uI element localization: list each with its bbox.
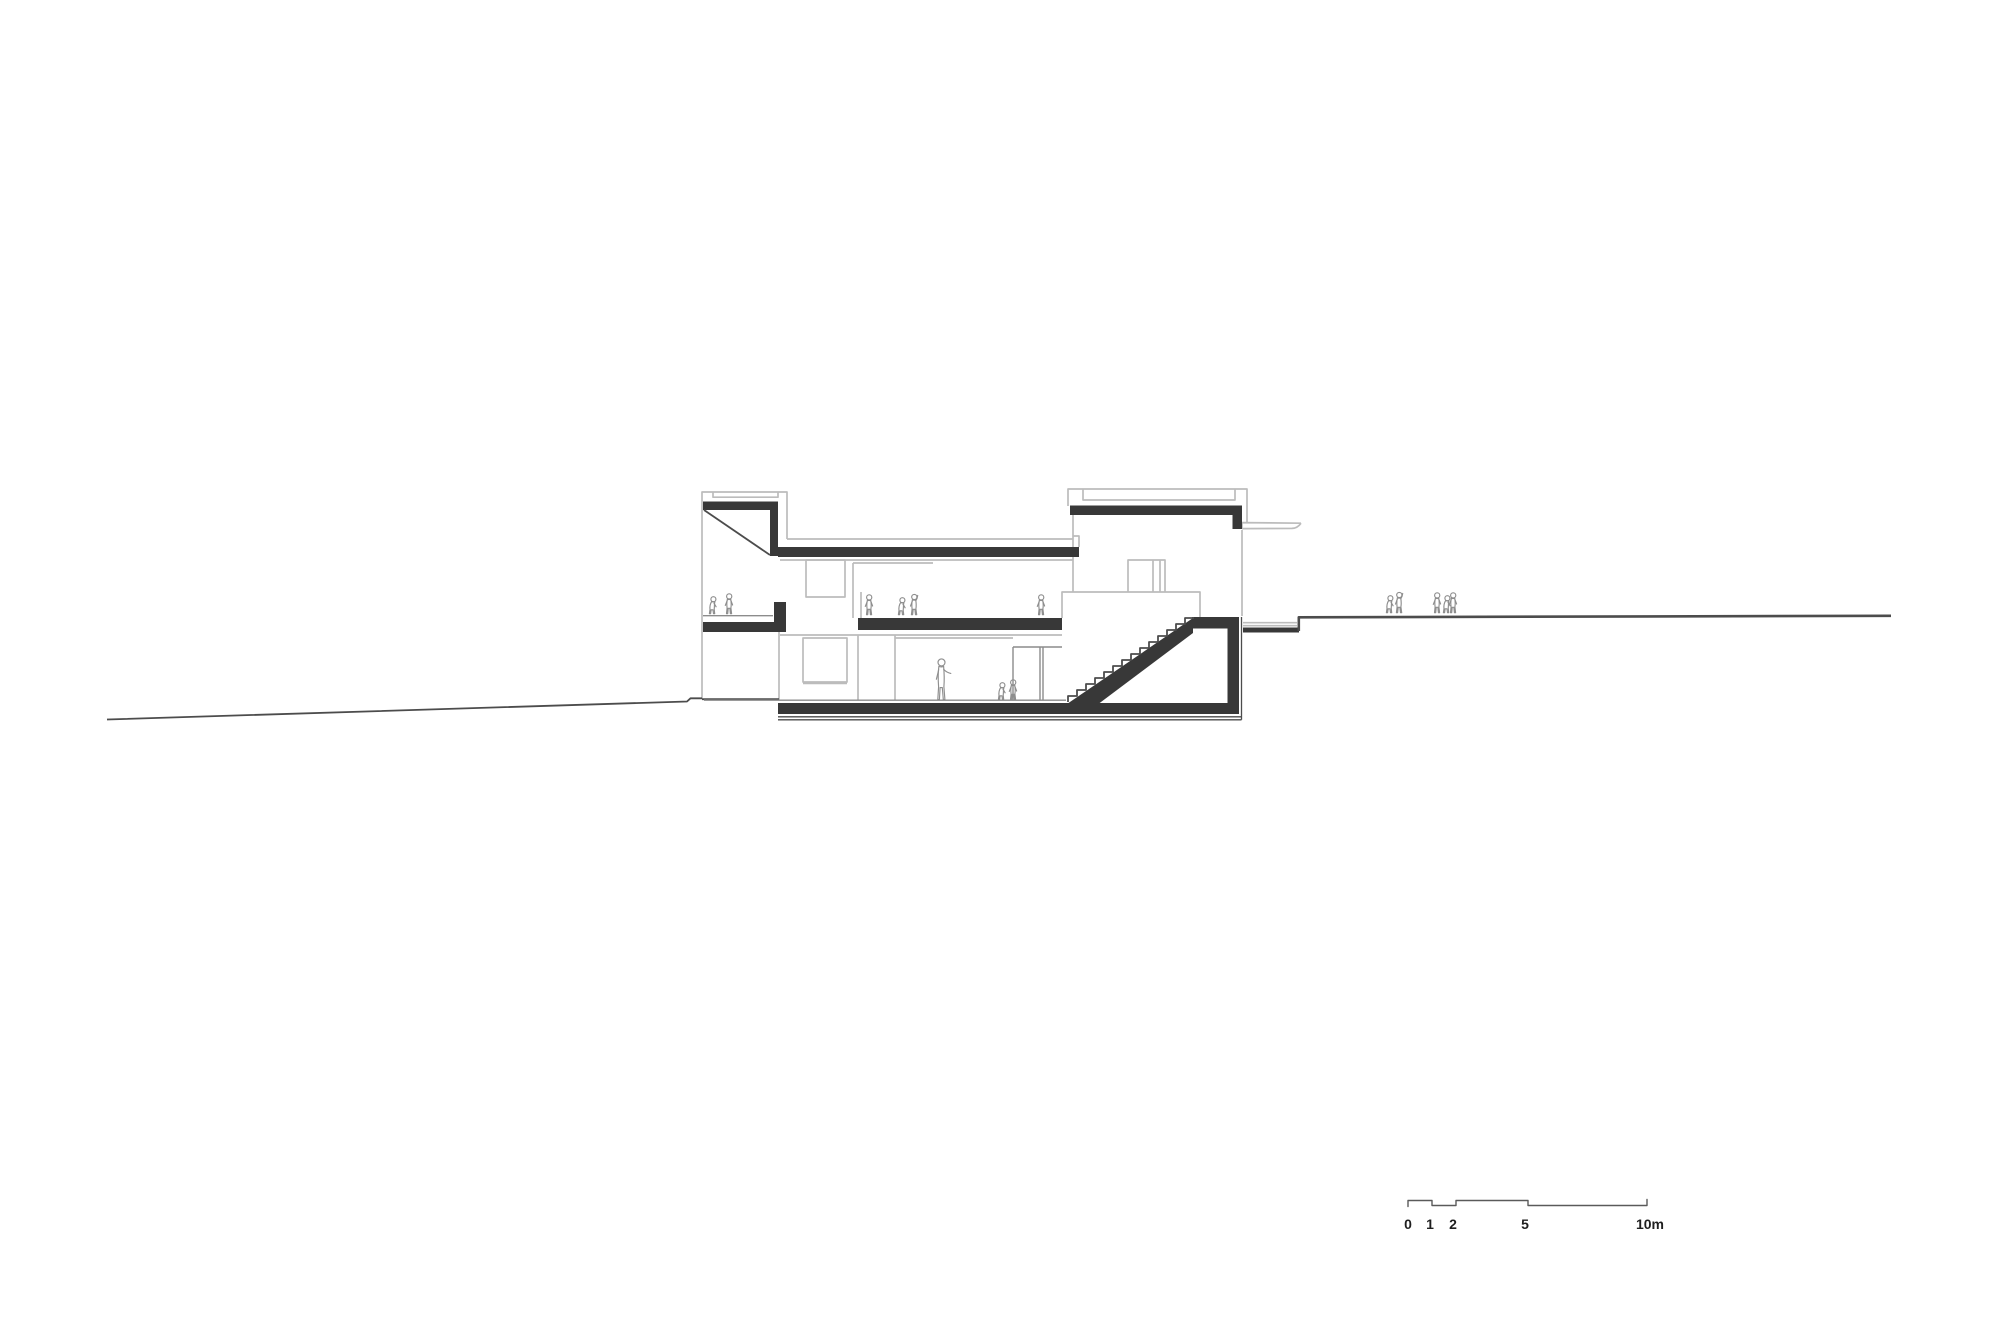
scale-label-0: 0: [1404, 1216, 1412, 1232]
scale-label-1: 1: [1426, 1216, 1434, 1232]
scale-label-5: 5: [1521, 1216, 1529, 1232]
section-drawing: 0 1 2 5 10m: [0, 0, 2000, 1333]
paper-background: [0, 0, 2000, 1333]
scale-label-10m: 10m: [1636, 1216, 1664, 1232]
drawing-sheet: 0 1 2 5 10m: [0, 0, 2000, 1333]
mid-roof-slab: [778, 547, 1079, 557]
scale-label-2: 2: [1449, 1216, 1457, 1232]
terrace-edge-poche: [1243, 628, 1299, 633]
upper-floor-slab: [858, 618, 1062, 630]
ground-floor-slab: [778, 703, 1239, 714]
